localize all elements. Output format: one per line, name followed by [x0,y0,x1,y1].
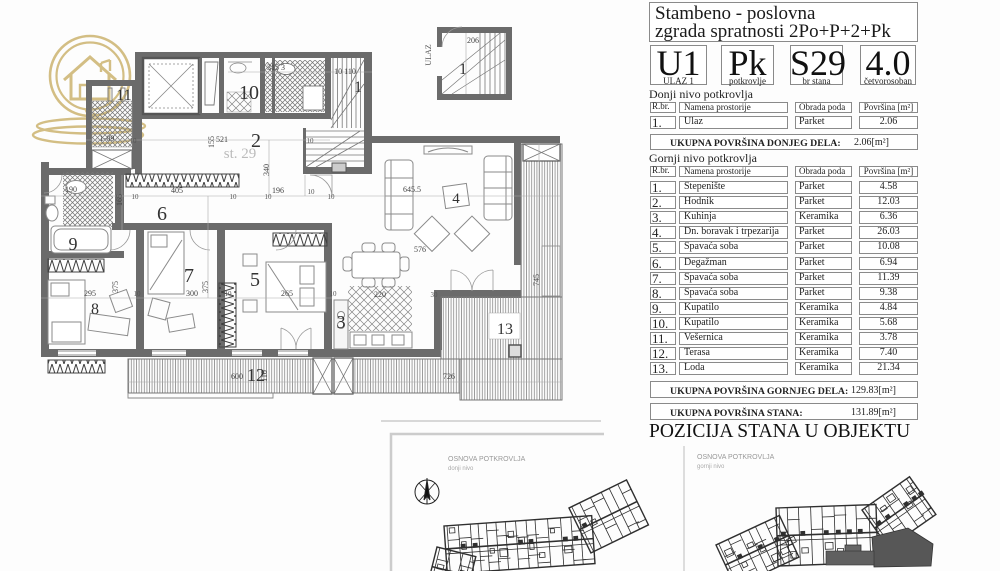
svg-text:10: 10 [330,290,338,298]
svg-text:8: 8 [91,301,99,318]
svg-text:7: 7 [184,265,194,287]
svg-text:10: 10 [239,82,259,104]
svg-text:1: 1 [354,79,362,96]
svg-text:1-09: 1-09 [100,134,115,143]
svg-text:375: 375 [111,281,120,293]
svg-text:190: 190 [65,185,77,194]
svg-text:220: 220 [374,290,386,299]
svg-text:375: 375 [201,281,210,293]
svg-text:3: 3 [337,312,346,332]
svg-text:OSNOVA POTKROVLJA: OSNOVA POTKROVLJA [697,454,775,461]
svg-text:5: 5 [250,269,260,291]
svg-text:521: 521 [216,135,228,144]
svg-text:645.5: 645.5 [403,185,421,194]
svg-text:gornji nivo: gornji nivo [697,464,725,470]
svg-text:300: 300 [186,289,198,298]
svg-text:10: 10 [225,290,233,298]
svg-text:10: 10 [265,193,273,201]
svg-text:10: 10 [132,193,140,201]
svg-text:9: 9 [69,234,78,254]
svg-text:10: 10 [230,193,238,201]
svg-text:206: 206 [467,36,479,45]
svg-text:196: 196 [272,186,284,195]
svg-text:600: 600 [231,372,243,381]
svg-text:405: 405 [171,186,183,195]
svg-text:745: 745 [532,274,541,286]
svg-text:10: 10 [328,193,336,201]
svg-text:10: 10 [130,137,138,145]
svg-text:155: 155 [207,136,216,148]
svg-text:576: 576 [414,245,426,254]
svg-text:295: 295 [84,289,96,298]
svg-text:10 110: 10 110 [334,67,356,76]
svg-text:11: 11 [116,87,131,104]
svg-text:ULAZ: ULAZ [424,44,433,65]
svg-text:10: 10 [134,290,142,298]
svg-text:10: 10 [308,188,316,196]
svg-text:315 3: 315 3 [267,63,285,72]
svg-text:340: 340 [262,164,271,176]
svg-text:6: 6 [157,203,167,225]
svg-text:110: 110 [260,370,269,382]
svg-text:13: 13 [497,321,513,338]
svg-text:OSNOVA POTKROVLJA: OSNOVA POTKROVLJA [448,456,526,463]
svg-text:donji nivo: donji nivo [448,466,474,472]
svg-text:1: 1 [459,61,467,78]
svg-text:4: 4 [452,191,460,207]
svg-text:st. 29: st. 29 [224,146,257,162]
svg-text:10: 10 [307,137,315,145]
svg-text:165: 165 [115,194,124,206]
svg-text:726: 726 [443,372,455,381]
svg-text:30: 30 [431,291,439,299]
svg-text:265: 265 [281,289,293,298]
